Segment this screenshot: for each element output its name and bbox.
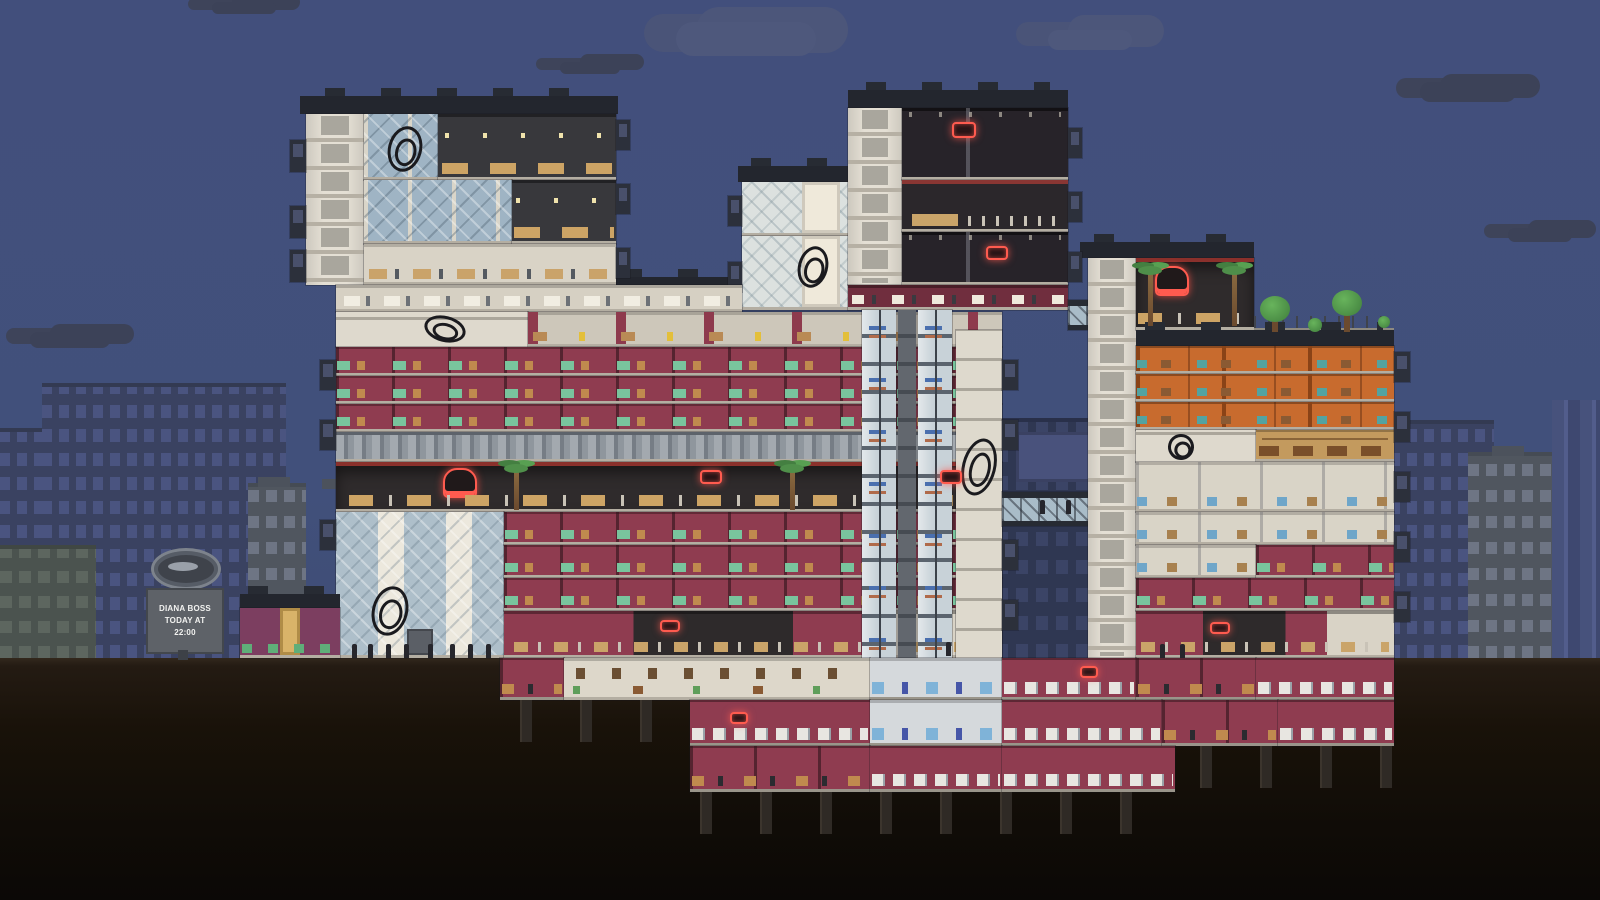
balcony xyxy=(616,248,630,278)
right-burger-slab xyxy=(1136,330,1254,346)
balcony xyxy=(616,120,630,150)
fig xyxy=(1160,644,1165,658)
pillar xyxy=(1260,746,1272,788)
basement-laundry xyxy=(690,700,870,746)
fig xyxy=(1066,500,1071,514)
bg-building-right-glass xyxy=(1552,400,1600,658)
pillar xyxy=(1000,792,1012,834)
balcony xyxy=(1394,532,1410,562)
fig xyxy=(352,644,357,658)
fig xyxy=(1040,500,1045,514)
balcony xyxy=(290,140,306,172)
billboard-topper-icon xyxy=(151,548,221,590)
right-shops-floor xyxy=(1136,611,1394,658)
basement-room xyxy=(1136,658,1256,700)
right-sculpture-room xyxy=(1136,430,1256,462)
pillar xyxy=(640,700,652,742)
balcony xyxy=(290,250,306,282)
cloud xyxy=(1508,228,1572,242)
balcony xyxy=(616,184,630,214)
cloud xyxy=(1048,30,1132,50)
nightclub-floor-1 xyxy=(902,108,1068,180)
billboard-line-3: 22:00 xyxy=(174,628,195,638)
restaurant-floor xyxy=(336,285,742,312)
cloud xyxy=(560,62,620,74)
fig xyxy=(428,644,433,658)
pillar xyxy=(580,700,592,742)
bakery-shop xyxy=(1256,430,1394,462)
fig xyxy=(468,644,473,658)
neon-sign xyxy=(730,712,748,724)
pillar xyxy=(700,792,712,834)
basement-laundry xyxy=(870,746,1002,792)
pillar xyxy=(940,792,952,834)
right-office-floor xyxy=(1136,545,1256,578)
neon-sign xyxy=(952,122,976,138)
balcony xyxy=(320,520,336,550)
basement-laundry xyxy=(1002,746,1175,792)
neon-sign xyxy=(940,470,962,484)
purple-annex-roof xyxy=(240,594,340,608)
grand-lobby xyxy=(336,512,504,658)
cloud xyxy=(1420,82,1516,102)
elevator-shaft-glass xyxy=(918,310,952,658)
pillar xyxy=(1060,792,1072,834)
balcony xyxy=(1002,360,1018,390)
billboard-line-2: TODAY AT xyxy=(165,616,206,626)
balcony xyxy=(1394,592,1410,622)
right-tower-elevator xyxy=(1088,258,1136,658)
basement-room xyxy=(690,746,870,792)
balcony xyxy=(320,360,336,390)
purple-lobby xyxy=(240,608,340,658)
right-amenity-floor xyxy=(1136,462,1394,512)
billboard-pole xyxy=(178,650,188,660)
fig xyxy=(946,642,951,656)
balcony xyxy=(728,196,742,226)
balcony xyxy=(1002,600,1018,630)
neon-sign xyxy=(1210,622,1230,634)
balcony xyxy=(320,420,336,450)
pillar xyxy=(1380,746,1392,788)
hotel-floor xyxy=(1256,545,1394,578)
neon-sign xyxy=(660,620,680,632)
fig xyxy=(1180,644,1185,658)
neon-sign xyxy=(1080,666,1098,678)
balcony xyxy=(1394,472,1410,502)
fig xyxy=(404,644,409,658)
club-diner-floor xyxy=(848,285,1068,310)
orange-office-floor xyxy=(1136,346,1394,374)
palm-plant xyxy=(514,470,519,510)
roof-tree xyxy=(1272,298,1278,332)
left-tower-lounge-2 xyxy=(512,180,616,244)
left-tower-cafe xyxy=(364,244,616,285)
right-office-floor xyxy=(1136,512,1394,545)
pillar xyxy=(520,700,532,742)
basement-laundry xyxy=(1278,700,1394,746)
right-tower-roof xyxy=(1080,242,1254,258)
basement-laundry xyxy=(1256,658,1394,700)
roof-shrub xyxy=(1378,316,1390,328)
balcony xyxy=(1068,128,1082,158)
basement-lab xyxy=(870,658,1002,700)
balcony xyxy=(1002,540,1018,570)
basement-room xyxy=(1162,700,1278,746)
basement-laundry xyxy=(1002,658,1136,700)
neon-sign xyxy=(986,246,1008,260)
roof-shrub xyxy=(1308,318,1322,332)
roof-tree xyxy=(1344,292,1350,332)
roof-garden-slab xyxy=(1254,330,1394,346)
palm-plant xyxy=(790,470,795,510)
pillar xyxy=(1200,746,1212,788)
neon-sign xyxy=(700,470,722,484)
bg-building-left-green xyxy=(0,545,96,658)
balcony xyxy=(290,206,306,238)
billboard-line-1: DIANA BOSS xyxy=(159,604,211,614)
orange-office-floor xyxy=(1136,374,1394,402)
pillar xyxy=(1120,792,1132,834)
pillar xyxy=(820,792,832,834)
club-tower-elevator xyxy=(848,108,902,285)
hotel-floor xyxy=(1136,578,1394,611)
palm-plant xyxy=(1148,272,1153,326)
cloud xyxy=(30,332,110,348)
palm-plant xyxy=(1232,272,1237,326)
game-viewport[interactable]: DIANA BOSS TODAY AT 22:00 xyxy=(0,0,1600,900)
city-scene: DIANA BOSS TODAY AT 22:00 xyxy=(0,0,1600,900)
club-bar-floor xyxy=(902,180,1068,232)
pillar xyxy=(760,792,772,834)
fig xyxy=(368,644,373,658)
balcony xyxy=(1068,252,1082,282)
orange-office-floor xyxy=(1136,402,1394,430)
balcony xyxy=(1394,352,1410,382)
left-tower-atrium-2 xyxy=(364,180,512,244)
pillar xyxy=(880,792,892,834)
left-tower-lounge-1 xyxy=(438,114,616,180)
nightclub-floor-2 xyxy=(902,232,1068,285)
basement-gallery xyxy=(564,658,870,700)
balcony xyxy=(1068,192,1082,222)
basement-lab xyxy=(870,700,1002,746)
billboard: DIANA BOSS TODAY AT 22:00 xyxy=(146,548,220,660)
fig xyxy=(450,644,455,658)
left-tower-roof xyxy=(300,96,618,114)
cloud xyxy=(676,22,816,56)
cloud xyxy=(212,2,276,14)
club-tower-roof xyxy=(848,90,1068,108)
balcony xyxy=(1394,412,1410,442)
pillar xyxy=(1320,746,1332,788)
balcony xyxy=(1002,420,1018,450)
left-tower-elevator xyxy=(306,114,364,285)
basement-laundry xyxy=(1002,700,1162,746)
fig xyxy=(386,644,391,658)
fig xyxy=(486,644,491,658)
basement-room xyxy=(500,658,564,700)
billboard-board: DIANA BOSS TODAY AT 22:00 xyxy=(146,588,224,654)
